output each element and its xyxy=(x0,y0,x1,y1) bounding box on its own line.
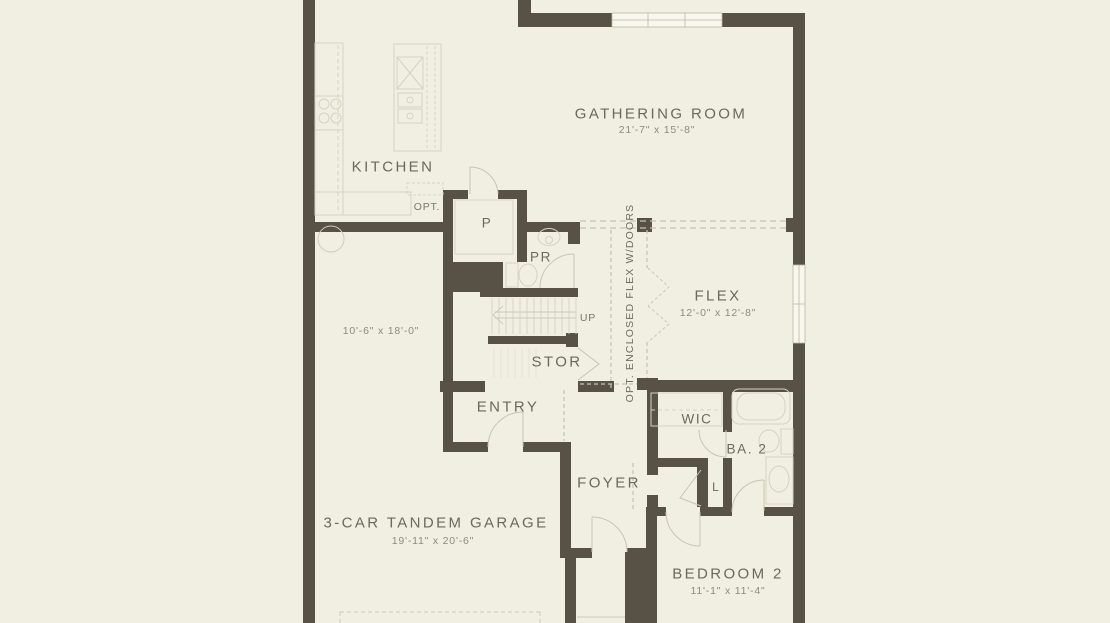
flex-label: FLEX xyxy=(694,288,741,305)
bath2-door xyxy=(732,480,764,512)
garage-door-outline xyxy=(340,612,540,623)
kitchen-optional-cabinet xyxy=(407,183,443,195)
entry-garage-door xyxy=(488,412,523,447)
flex-window xyxy=(793,265,805,343)
front-door xyxy=(592,517,627,552)
garage-dimensions: 19'-11" x 20'-6" xyxy=(392,535,474,547)
under-stair-treads xyxy=(494,348,536,378)
flex-option-label: OPT. ENCLOSED FLEX W/DOORS xyxy=(624,204,636,403)
gathering-room-window xyxy=(612,13,722,27)
entry-label: ENTRY xyxy=(477,399,540,416)
linen-closet-label: L xyxy=(712,480,720,494)
stairs-up-label: UP xyxy=(580,312,596,324)
pantry-door xyxy=(470,167,498,194)
wic-label: WIC xyxy=(681,412,712,427)
flex-optional-double-doors xyxy=(648,268,669,342)
kitchen-option-label: OPT. xyxy=(414,201,441,213)
pantry-label: P xyxy=(482,216,493,231)
island-sink xyxy=(398,93,422,123)
garage-label: 3-CAR TANDEM GARAGE xyxy=(323,515,548,532)
kitchen-island xyxy=(394,44,441,151)
floor-plan-drawing xyxy=(0,0,1110,623)
wic-door xyxy=(699,430,726,457)
kitchen-label: KITCHEN xyxy=(352,159,435,176)
gathering-room-dimensions: 21'-7" x 15'-8" xyxy=(619,124,696,136)
storage-label: STOR xyxy=(532,354,583,371)
flex-dimensions: 12'-0" x 12'-8" xyxy=(680,307,757,319)
powder-room-label: PR xyxy=(530,250,552,265)
powder-toilet xyxy=(506,263,537,287)
floor-plan-page: KITCHEN GATHERING ROOM 21'-7" x 15'-8" O… xyxy=(0,0,1110,623)
bath2-vanity xyxy=(766,457,793,504)
garage-tandem-bay-dimensions: 10'-6" x 18'-0" xyxy=(343,325,420,337)
bedroom2-dimensions: 11'-1" x 11'-4" xyxy=(690,585,765,597)
gathering-room-label: GATHERING ROOM xyxy=(575,106,748,123)
bedroom2-door xyxy=(666,512,700,546)
bath2-tub xyxy=(732,389,790,424)
foyer-label: FOYER xyxy=(577,475,641,492)
bedroom2-label: BEDROOM 2 xyxy=(672,566,784,583)
bath2-label: BA. 2 xyxy=(726,442,767,457)
